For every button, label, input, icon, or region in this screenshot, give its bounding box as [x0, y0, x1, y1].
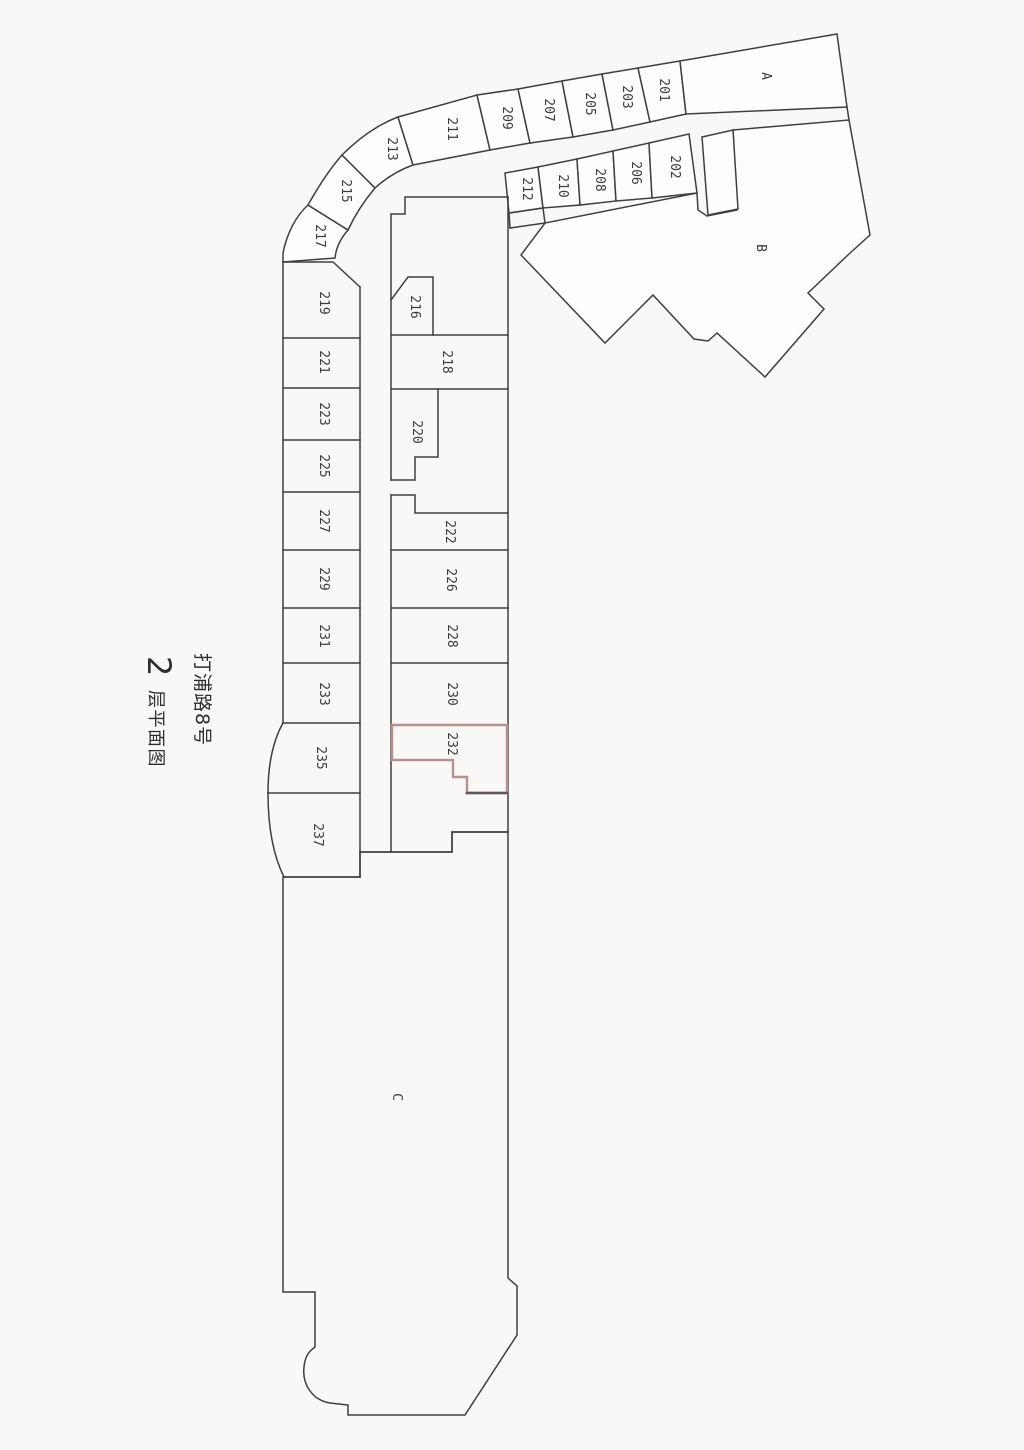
room-203-label: 203	[619, 85, 634, 108]
room-205-label: 205	[582, 92, 597, 115]
section-c-label: C	[389, 1093, 404, 1101]
room-225-label: 225	[316, 454, 331, 477]
room-227-label: 227	[316, 509, 331, 532]
room-202-label: 202	[667, 155, 682, 178]
floor-plan-drawing: 217 215 213 211 209 207 205 203 201 A 21…	[0, 0, 1024, 1450]
room-226-label: 226	[443, 568, 458, 591]
room-208-label: 208	[592, 168, 607, 191]
room-207-label: 207	[541, 98, 556, 121]
room-210-label: 210	[555, 174, 570, 197]
room-215-label: 215	[338, 179, 353, 202]
section-a-label: A	[758, 72, 773, 80]
room-231-label: 231	[316, 624, 331, 647]
room-218-label: 218	[439, 350, 454, 373]
room-235-label: 235	[313, 746, 328, 769]
room-221-label: 221	[316, 350, 331, 373]
room-222-label: 222	[442, 520, 457, 543]
room-217-label: 217	[312, 224, 327, 247]
plan-title-floor-number: 2	[140, 656, 178, 676]
section-b-label: B	[753, 244, 768, 252]
shaft-strip	[702, 130, 738, 215]
room-232-label: 232	[444, 732, 459, 755]
room-212-label: 212	[519, 177, 534, 200]
plan-title-floor-suffix: 层平面图	[145, 690, 166, 768]
room-220-label: 220	[409, 420, 424, 443]
room-233-label: 233	[316, 682, 331, 705]
room-216-label: 216	[407, 295, 422, 318]
room-228-label: 228	[444, 624, 459, 647]
floor-plan-page: 217 215 213 211 209 207 205 203 201 A 21…	[0, 0, 1024, 1450]
room-237-label: 237	[310, 823, 325, 846]
room-230-label: 230	[444, 682, 459, 705]
room-229-label: 229	[316, 567, 331, 590]
room-219-label: 219	[316, 291, 331, 314]
room-201-label: 201	[656, 78, 671, 101]
room-213-label: 213	[384, 137, 399, 160]
room-206-label: 206	[628, 161, 643, 184]
room-223-label: 223	[316, 402, 331, 425]
room-211-label: 211	[444, 117, 459, 140]
room-209-label: 209	[499, 106, 514, 129]
plan-title-building: 打浦路8号	[191, 653, 213, 746]
